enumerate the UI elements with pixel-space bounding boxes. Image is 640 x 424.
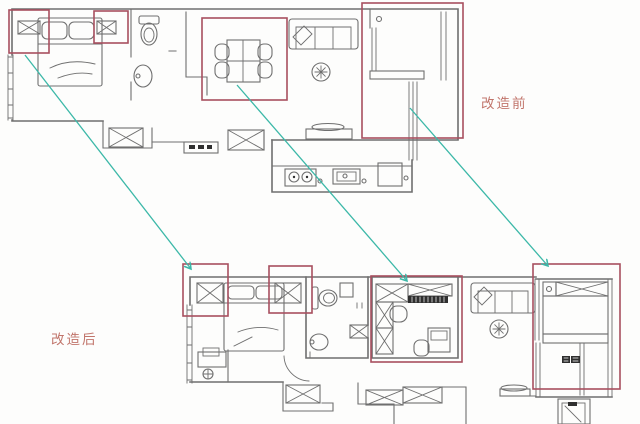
balcony bbox=[535, 279, 612, 424]
bathroom bbox=[306, 277, 368, 358]
ceiling-fan-icon bbox=[490, 320, 508, 338]
outer-wall bbox=[12, 9, 458, 139]
bedroom bbox=[18, 9, 131, 100]
toilet-icon bbox=[312, 287, 337, 309]
annotation-layer bbox=[9, 3, 620, 389]
window-left-wall bbox=[8, 55, 13, 120]
study-room bbox=[372, 277, 458, 358]
label-after-renovation: 改造后 bbox=[51, 328, 98, 348]
dresser-icon bbox=[198, 348, 226, 367]
sink-icon bbox=[310, 334, 328, 350]
ceiling-fan-icon bbox=[312, 63, 330, 81]
desk-icon bbox=[428, 328, 450, 352]
change-arrow-1 bbox=[25, 55, 191, 269]
appliance-label-icon bbox=[562, 356, 580, 363]
floorplan-comparison: 改造前 改造后 bbox=[0, 0, 640, 424]
shower-icon bbox=[558, 399, 590, 424]
shelf-icon bbox=[500, 385, 530, 396]
lower-hall bbox=[283, 382, 536, 424]
vanity-icon bbox=[340, 283, 353, 297]
outer-wall bbox=[190, 277, 612, 382]
toilet-icon bbox=[139, 16, 159, 45]
bathroom bbox=[134, 12, 207, 95]
entry-hall bbox=[103, 121, 264, 153]
bed-icon bbox=[38, 18, 102, 86]
sofa-icon bbox=[289, 19, 358, 49]
kitchen-sink-icon bbox=[333, 169, 360, 184]
stool-icon bbox=[203, 369, 213, 379]
sofa-icon bbox=[471, 283, 535, 313]
highlight-box-after-balcony bbox=[533, 264, 620, 389]
living-room bbox=[272, 19, 458, 140]
tv-console-icon bbox=[306, 124, 352, 140]
change-arrow-2 bbox=[237, 85, 407, 281]
kitchen bbox=[272, 140, 412, 192]
change-arrow-3 bbox=[410, 108, 548, 266]
sink-icon bbox=[134, 65, 152, 87]
living-room bbox=[471, 283, 535, 338]
highlight-box-before-wardrobe-left bbox=[9, 10, 49, 53]
floorplan-canvas bbox=[0, 0, 640, 424]
cabinet-icon bbox=[543, 282, 556, 296]
highlight-box-before-dining-area bbox=[202, 18, 287, 100]
highlight-box-before-wardrobe-right bbox=[94, 11, 128, 43]
chair-icon bbox=[414, 340, 429, 356]
bedroom bbox=[197, 283, 310, 382]
label-before-renovation: 改造前 bbox=[481, 92, 528, 112]
floorplan-after bbox=[187, 277, 612, 424]
dining-table-icon bbox=[227, 40, 260, 82]
piano-keys-icon bbox=[408, 296, 448, 303]
wood-deck-icon bbox=[543, 296, 608, 334]
dining-area bbox=[215, 40, 272, 82]
